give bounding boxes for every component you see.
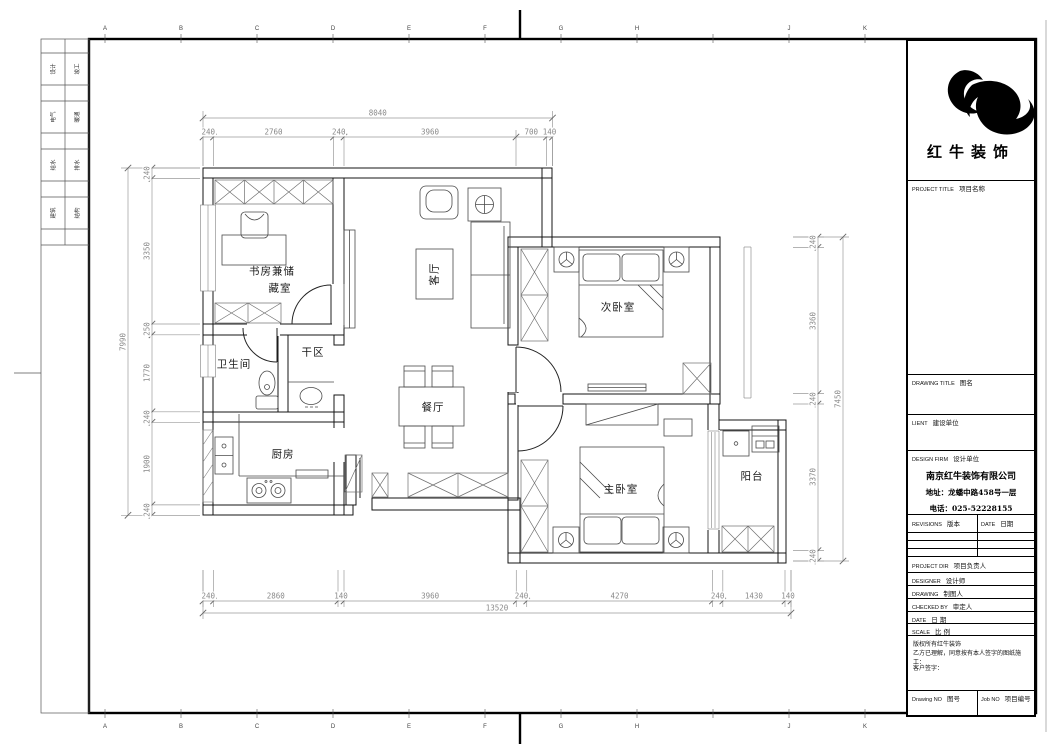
room-label: 厨房 <box>272 447 295 462</box>
dimension-label: 240 <box>710 591 726 600</box>
side-strip-label: 竣工 <box>73 63 81 74</box>
dimension-label: 140 <box>542 127 558 136</box>
rule <box>908 690 1034 691</box>
rule <box>908 180 1034 181</box>
dimension-label: 2760 <box>263 127 283 136</box>
grid-letter-bottom: H <box>635 724 639 730</box>
drawing-no-divider <box>977 690 978 715</box>
grid-letter-bottom: C <box>255 724 259 730</box>
drawing-person-cn: 制图人 <box>943 588 963 598</box>
dimension-label: 2860 <box>266 591 286 600</box>
dimension-label: 240 <box>200 127 216 136</box>
client-cn: 建设单位 <box>933 417 959 427</box>
grid-letter-top: C <box>255 26 259 32</box>
checked-by-field: CHECKED BY 审定人 <box>912 601 1032 611</box>
room-label: 卫生间 <box>217 357 252 372</box>
dimension-label: 240 <box>514 591 530 600</box>
design-firm-cn: 设计单位 <box>953 453 979 463</box>
room-label: 阳台 <box>741 469 764 484</box>
dimension-label: 700 <box>523 127 539 136</box>
designer-cn: 设计师 <box>946 575 966 585</box>
rule <box>908 635 1034 636</box>
rule <box>908 611 1034 612</box>
grid-letter-bottom: F <box>483 724 487 730</box>
room-label: 干区 <box>302 345 325 360</box>
dimension-label: 250 <box>142 322 151 338</box>
rule <box>908 450 1034 451</box>
side-strip-label: 设计 <box>49 63 57 74</box>
dimension-label: 8040 <box>368 108 388 117</box>
dimension-label: 3350 <box>142 241 151 261</box>
dimension-label: 1900 <box>142 454 151 474</box>
rule <box>908 623 1034 624</box>
project-dir-field: PROJECT DIR 项目负责人 <box>912 560 1032 570</box>
copyright-line1: 版权所有红牛装饰 <box>913 639 1031 648</box>
company-address: 地址：龙蟠中路458号一层 <box>908 487 1034 498</box>
side-strip-label: 建筑 <box>49 207 57 218</box>
side-strip-label: 暖通 <box>73 111 81 122</box>
title-block: 红牛装饰 PROJECT TITLE 项目名称 DRAWING TITLE 图名… <box>906 39 1036 717</box>
grid-letter-bottom: G <box>559 724 564 730</box>
company-phone: 电话：025-52228155 <box>908 503 1034 514</box>
dimension-label: 7450 <box>833 389 842 409</box>
dimension-label: 4270 <box>610 591 630 600</box>
dimension-label: 240 <box>808 391 817 407</box>
revisions-header: REVISIONS 版本 <box>912 518 972 528</box>
text-overlay: 2402760240396070014080402403350250177024… <box>0 0 1061 750</box>
drawing-no-en: Drawing NO <box>912 697 942 703</box>
rule <box>908 514 1034 515</box>
rule <box>908 585 1034 586</box>
date-col-header: DATE 日期 <box>981 518 1032 528</box>
client-field: LIENT 建设单位 <box>912 417 1032 427</box>
designer-field: DESIGNER 设计师 <box>912 575 1032 585</box>
project-dir-en: PROJECT DIR <box>912 564 949 570</box>
rule <box>908 414 1034 415</box>
design-firm-en: DESIGN FIRM <box>912 457 948 463</box>
rule <box>908 540 1034 541</box>
project-title-cn: 项目名称 <box>959 183 985 193</box>
drawing-title-cn: 图名 <box>960 377 973 387</box>
redbull-logo-icon <box>908 49 1034 144</box>
room-label: 客厅 <box>427 263 442 286</box>
drawing-title-en: DRAWING TITLE <box>912 381 955 387</box>
side-strip-label: 结构 <box>73 207 81 218</box>
side-strip-label: 给水 <box>49 159 57 170</box>
revisions-cn: 版本 <box>947 518 960 528</box>
side-strip-label: 排水 <box>73 159 81 170</box>
project-dir-cn: 项目负责人 <box>954 560 987 570</box>
dimension-label: 3960 <box>420 127 440 136</box>
job-no-field: Job NO 项目编号 <box>981 693 1032 703</box>
dimension-label: 1430 <box>744 591 764 600</box>
dimension-label: 240 <box>808 234 817 250</box>
dimension-label: 140 <box>333 591 349 600</box>
revisions-en: REVISIONS <box>912 522 942 528</box>
date-col-en: DATE <box>981 522 995 528</box>
drawing-title-field: DRAWING TITLE 图名 <box>912 377 1032 387</box>
project-title-field: PROJECT TITLE 项目名称 <box>912 183 1032 193</box>
grid-letter-top: J <box>788 26 791 32</box>
grid-letter-top: A <box>103 26 107 32</box>
grid-letter-bottom: J <box>788 724 791 730</box>
dimension-label: 3370 <box>808 467 817 487</box>
job-no-en: Job NO <box>981 697 1000 703</box>
grid-letter-top: K <box>863 26 867 32</box>
date-col-cn: 日期 <box>1000 518 1013 528</box>
revision-divider <box>977 514 978 556</box>
dimension-label: 13520 <box>485 603 510 612</box>
dimension-label: 140 <box>780 591 796 600</box>
company-name: 南京红牛装饰有限公司 <box>908 469 1034 482</box>
checked-by-cn: 审定人 <box>953 601 973 611</box>
rule <box>908 556 1034 557</box>
side-strip-label: 电气 <box>49 111 57 122</box>
job-no-cn: 项目编号 <box>1005 693 1031 703</box>
room-label: 书房兼储 <box>249 264 295 279</box>
grid-letter-bottom: E <box>407 724 411 730</box>
rule <box>908 374 1034 375</box>
rule <box>908 572 1034 573</box>
room-label: 次卧室 <box>601 300 636 315</box>
room-label: 主卧室 <box>604 482 639 497</box>
dimension-label: 7990 <box>118 332 127 352</box>
drawing-person-field: DRAWING 制图人 <box>912 588 1032 598</box>
room-label: 餐厅 <box>422 400 445 415</box>
grid-letter-bottom: D <box>331 724 335 730</box>
grid-letter-bottom: K <box>863 724 867 730</box>
dimension-label: 240 <box>808 548 817 564</box>
grid-letter-top: D <box>331 26 335 32</box>
dimension-label: 240 <box>142 502 151 518</box>
drawing-sheet: 2402760240396070014080402403350250177024… <box>0 0 1061 750</box>
rule <box>908 532 1034 533</box>
dimension-label: 1770 <box>142 363 151 383</box>
drawing-no-field: Drawing NO 图号 <box>912 693 972 703</box>
dimension-label: 240 <box>142 409 151 425</box>
project-title-en: PROJECT TITLE <box>912 187 954 193</box>
drawing-no-cn: 图号 <box>947 693 960 703</box>
client-en: LIENT <box>912 421 928 427</box>
grid-letter-top: H <box>635 26 639 32</box>
dimension-label: 240 <box>142 165 151 181</box>
rule <box>908 598 1034 599</box>
grid-letter-top: B <box>179 26 183 32</box>
grid-letter-bottom: A <box>103 724 107 730</box>
brand-name: 红牛装饰 <box>908 141 1034 162</box>
grid-letter-top: E <box>407 26 411 32</box>
rule <box>908 548 1034 549</box>
dimension-label: 240 <box>331 127 347 136</box>
design-firm-field: DESIGN FIRM 设计单位 <box>912 453 1032 463</box>
dimension-label: 3360 <box>808 310 817 330</box>
room-label: 藏室 <box>269 281 292 296</box>
dimension-label: 240 <box>200 591 216 600</box>
grid-letter-top: G <box>559 26 564 32</box>
grid-letter-bottom: B <box>179 724 183 730</box>
grid-letter-top: F <box>483 26 487 32</box>
signature-label: 客户签字： <box>913 663 1031 672</box>
dimension-label: 3960 <box>420 591 440 600</box>
